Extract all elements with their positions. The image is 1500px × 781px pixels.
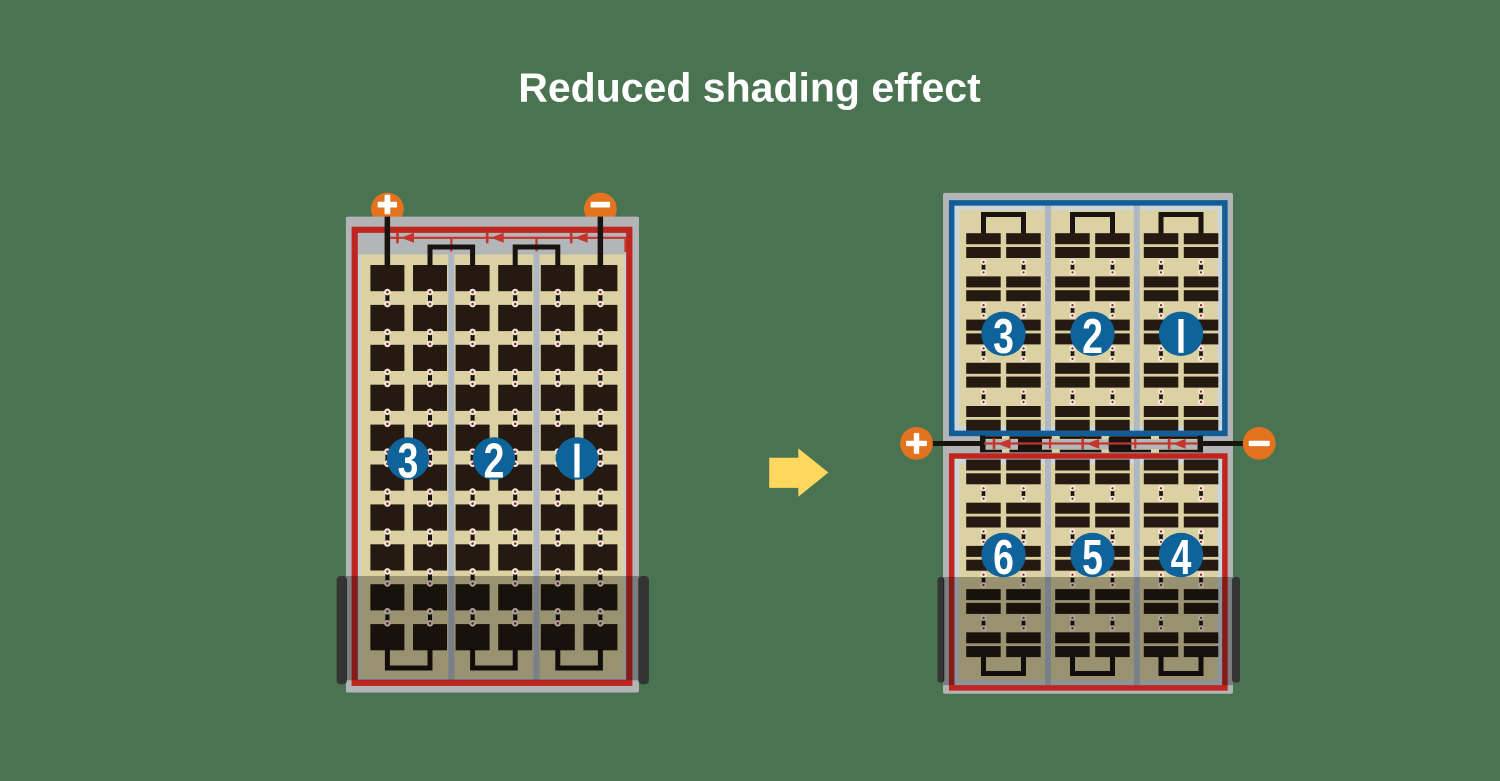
svg-text:2: 2 — [1082, 310, 1103, 364]
svg-text:2: 2 — [484, 435, 505, 489]
svg-text:3: 3 — [398, 435, 419, 489]
svg-text:Reduced shading effect: Reduced shading effect — [518, 65, 981, 111]
svg-text:3: 3 — [993, 310, 1014, 364]
